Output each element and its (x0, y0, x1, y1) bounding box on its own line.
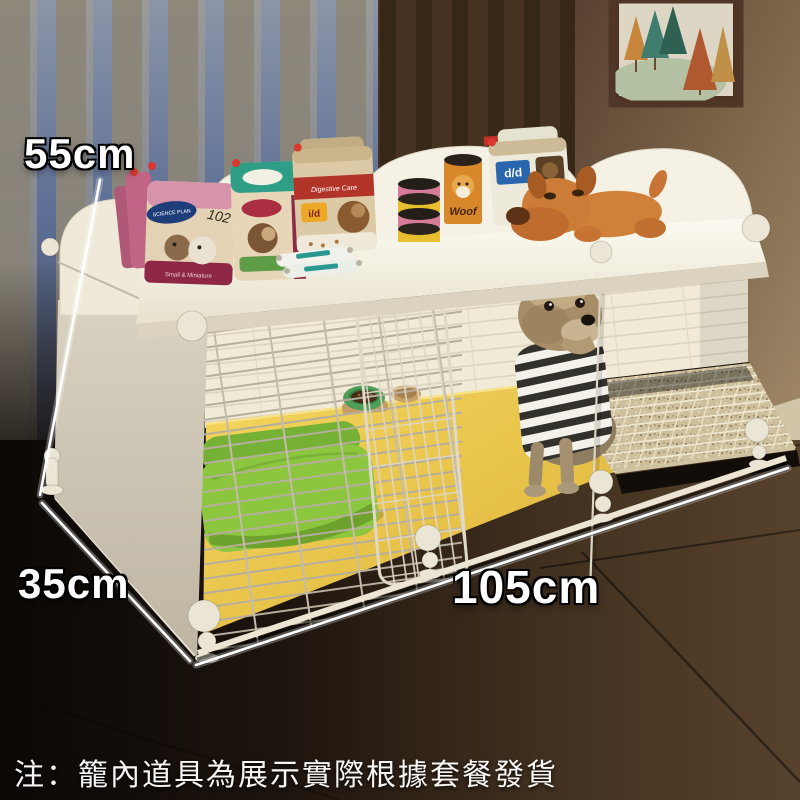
woof-can: Woof (444, 154, 482, 224)
dog-nose (581, 315, 595, 326)
depth-dimension-label: 35cm (18, 560, 129, 608)
scene-drawing: SCIENCE PLAN Small & Miniature 102 Diges… (0, 0, 800, 800)
plush-paw (574, 226, 602, 242)
plush-eye (544, 193, 556, 200)
dog-paw (557, 482, 579, 494)
plush-nose (506, 207, 530, 225)
dog-front-leg (559, 438, 574, 487)
id-badge-text: i/d (308, 209, 320, 221)
plush-eye (572, 190, 584, 197)
dog-eye (575, 298, 585, 308)
dog-eye (544, 301, 554, 311)
disclaimer-note: 注：籠內道具為展示實際根據套餐發貨 (14, 750, 558, 794)
canned-food-stack (398, 178, 440, 242)
product-photo: SCIENCE PLAN Small & Miniature 102 Diges… (0, 0, 800, 800)
framed-picture (610, 0, 740, 106)
dog-paw (524, 485, 546, 497)
width-dimension-label: 105cm (452, 560, 600, 614)
height-dimension-label: 55cm (24, 130, 135, 178)
science-plan-bag: SCIENCE PLAN Small & Miniature 102 (143, 180, 236, 285)
interior-corner-shade (700, 272, 748, 370)
id-food-bags: Digestive Care i/d (291, 136, 377, 254)
dd-badge-text: d/d (504, 165, 523, 180)
woof-text: Woof (449, 206, 478, 218)
